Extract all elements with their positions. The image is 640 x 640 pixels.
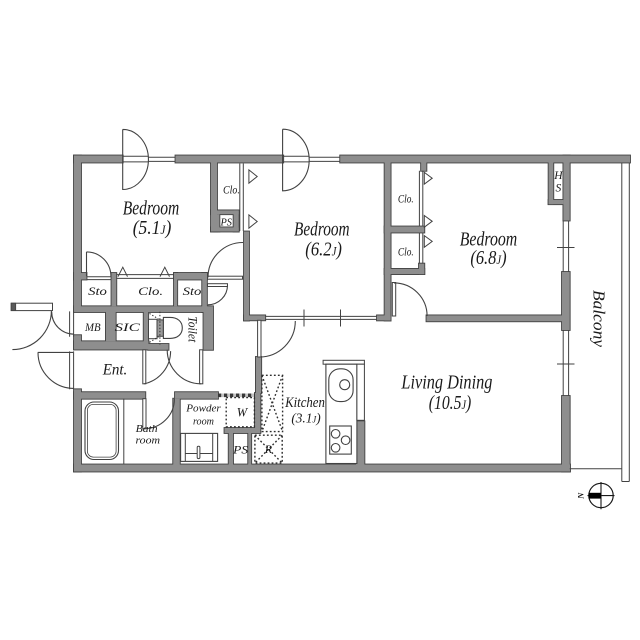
svg-text:PS: PS	[232, 443, 248, 457]
svg-text:Powder: Powder	[185, 403, 221, 415]
svg-text:Toilet: Toilet	[186, 316, 200, 342]
svg-text:Living Dining: Living Dining	[401, 372, 493, 394]
svg-text:(3.1J): (3.1J)	[291, 412, 321, 427]
svg-text:S: S	[556, 183, 562, 195]
svg-text:Clo.: Clo.	[398, 191, 414, 205]
svg-text:Sto: Sto	[88, 284, 107, 298]
svg-text:Sto: Sto	[183, 284, 202, 298]
svg-text:Clo.: Clo.	[223, 182, 240, 196]
svg-text:(10.5J): (10.5J)	[429, 392, 472, 414]
svg-text:room: room	[193, 416, 214, 428]
svg-text:Ent.: Ent.	[102, 362, 128, 379]
svg-text:PS: PS	[220, 216, 233, 228]
svg-text:Bedroom: Bedroom	[294, 218, 350, 240]
svg-text:SIC: SIC	[115, 320, 141, 334]
svg-text:N: N	[575, 492, 585, 500]
svg-text:Clo.: Clo.	[398, 244, 414, 258]
svg-text:H: H	[553, 170, 563, 182]
svg-text:(5.1J): (5.1J)	[133, 217, 172, 239]
svg-text:W: W	[237, 406, 249, 420]
svg-text:(6.2J): (6.2J)	[305, 239, 342, 261]
svg-text:Kitchen: Kitchen	[284, 395, 325, 411]
svg-text:Clo.: Clo.	[138, 284, 163, 298]
svg-text:room: room	[136, 435, 161, 447]
svg-text:MB: MB	[84, 320, 101, 334]
svg-text:Balcony: Balcony	[590, 290, 609, 347]
svg-text:Bath: Bath	[136, 423, 159, 435]
svg-text:(6.8J): (6.8J)	[470, 247, 507, 269]
svg-text:R: R	[264, 442, 273, 456]
